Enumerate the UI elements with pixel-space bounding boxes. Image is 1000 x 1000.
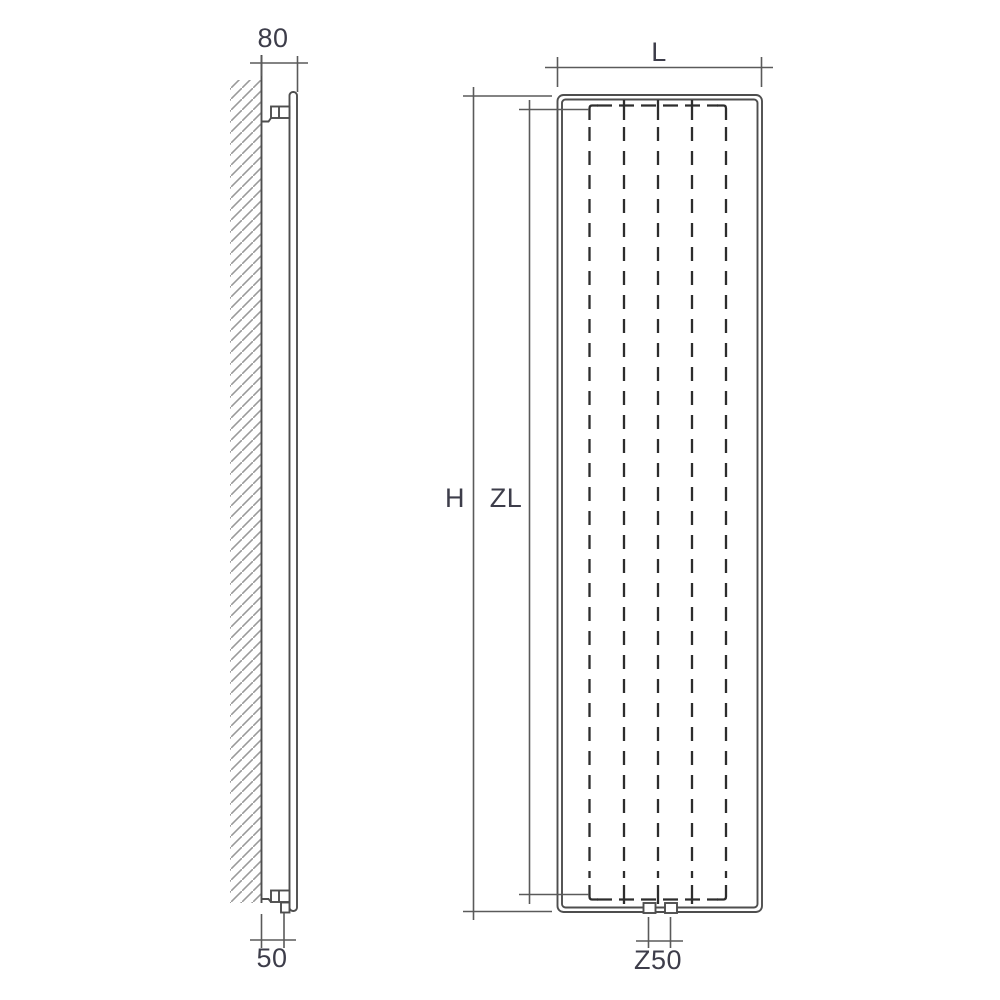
front-view: L H ZL Z50 [445,37,773,975]
radiator-dimension-diagram: 80 50 [0,0,1000,1000]
radiator-panel-side [290,92,298,911]
dim-label-depth: 80 [257,23,288,53]
dim-label-50: 50 [256,943,287,973]
drawing-svg: 80 50 [0,0,1000,1000]
dimension-wall-to-connection: 50 [250,913,296,973]
dim-label-z50: Z50 [634,945,682,975]
pipe-connection-side [281,903,290,913]
wall-hatching [230,80,261,903]
dim-label-width: L [651,37,667,67]
bottom-connection-left [644,903,656,913]
bottom-bracket-arm [271,891,290,903]
side-view: 80 50 [230,23,308,973]
bottom-bracket-lip [262,899,272,902]
radiator-front-outer-frame [558,95,763,912]
dimension-width: L [545,37,773,87]
top-bracket [262,107,290,122]
dim-label-hub-length: ZL [490,483,523,513]
dim-label-height: H [445,483,465,513]
top-bracket-lip [262,118,272,122]
top-bracket-arm [271,107,290,119]
bottom-connection-right [665,903,677,913]
dimension-connection-spacing: Z50 [634,917,683,975]
bottom-bracket [262,891,290,903]
